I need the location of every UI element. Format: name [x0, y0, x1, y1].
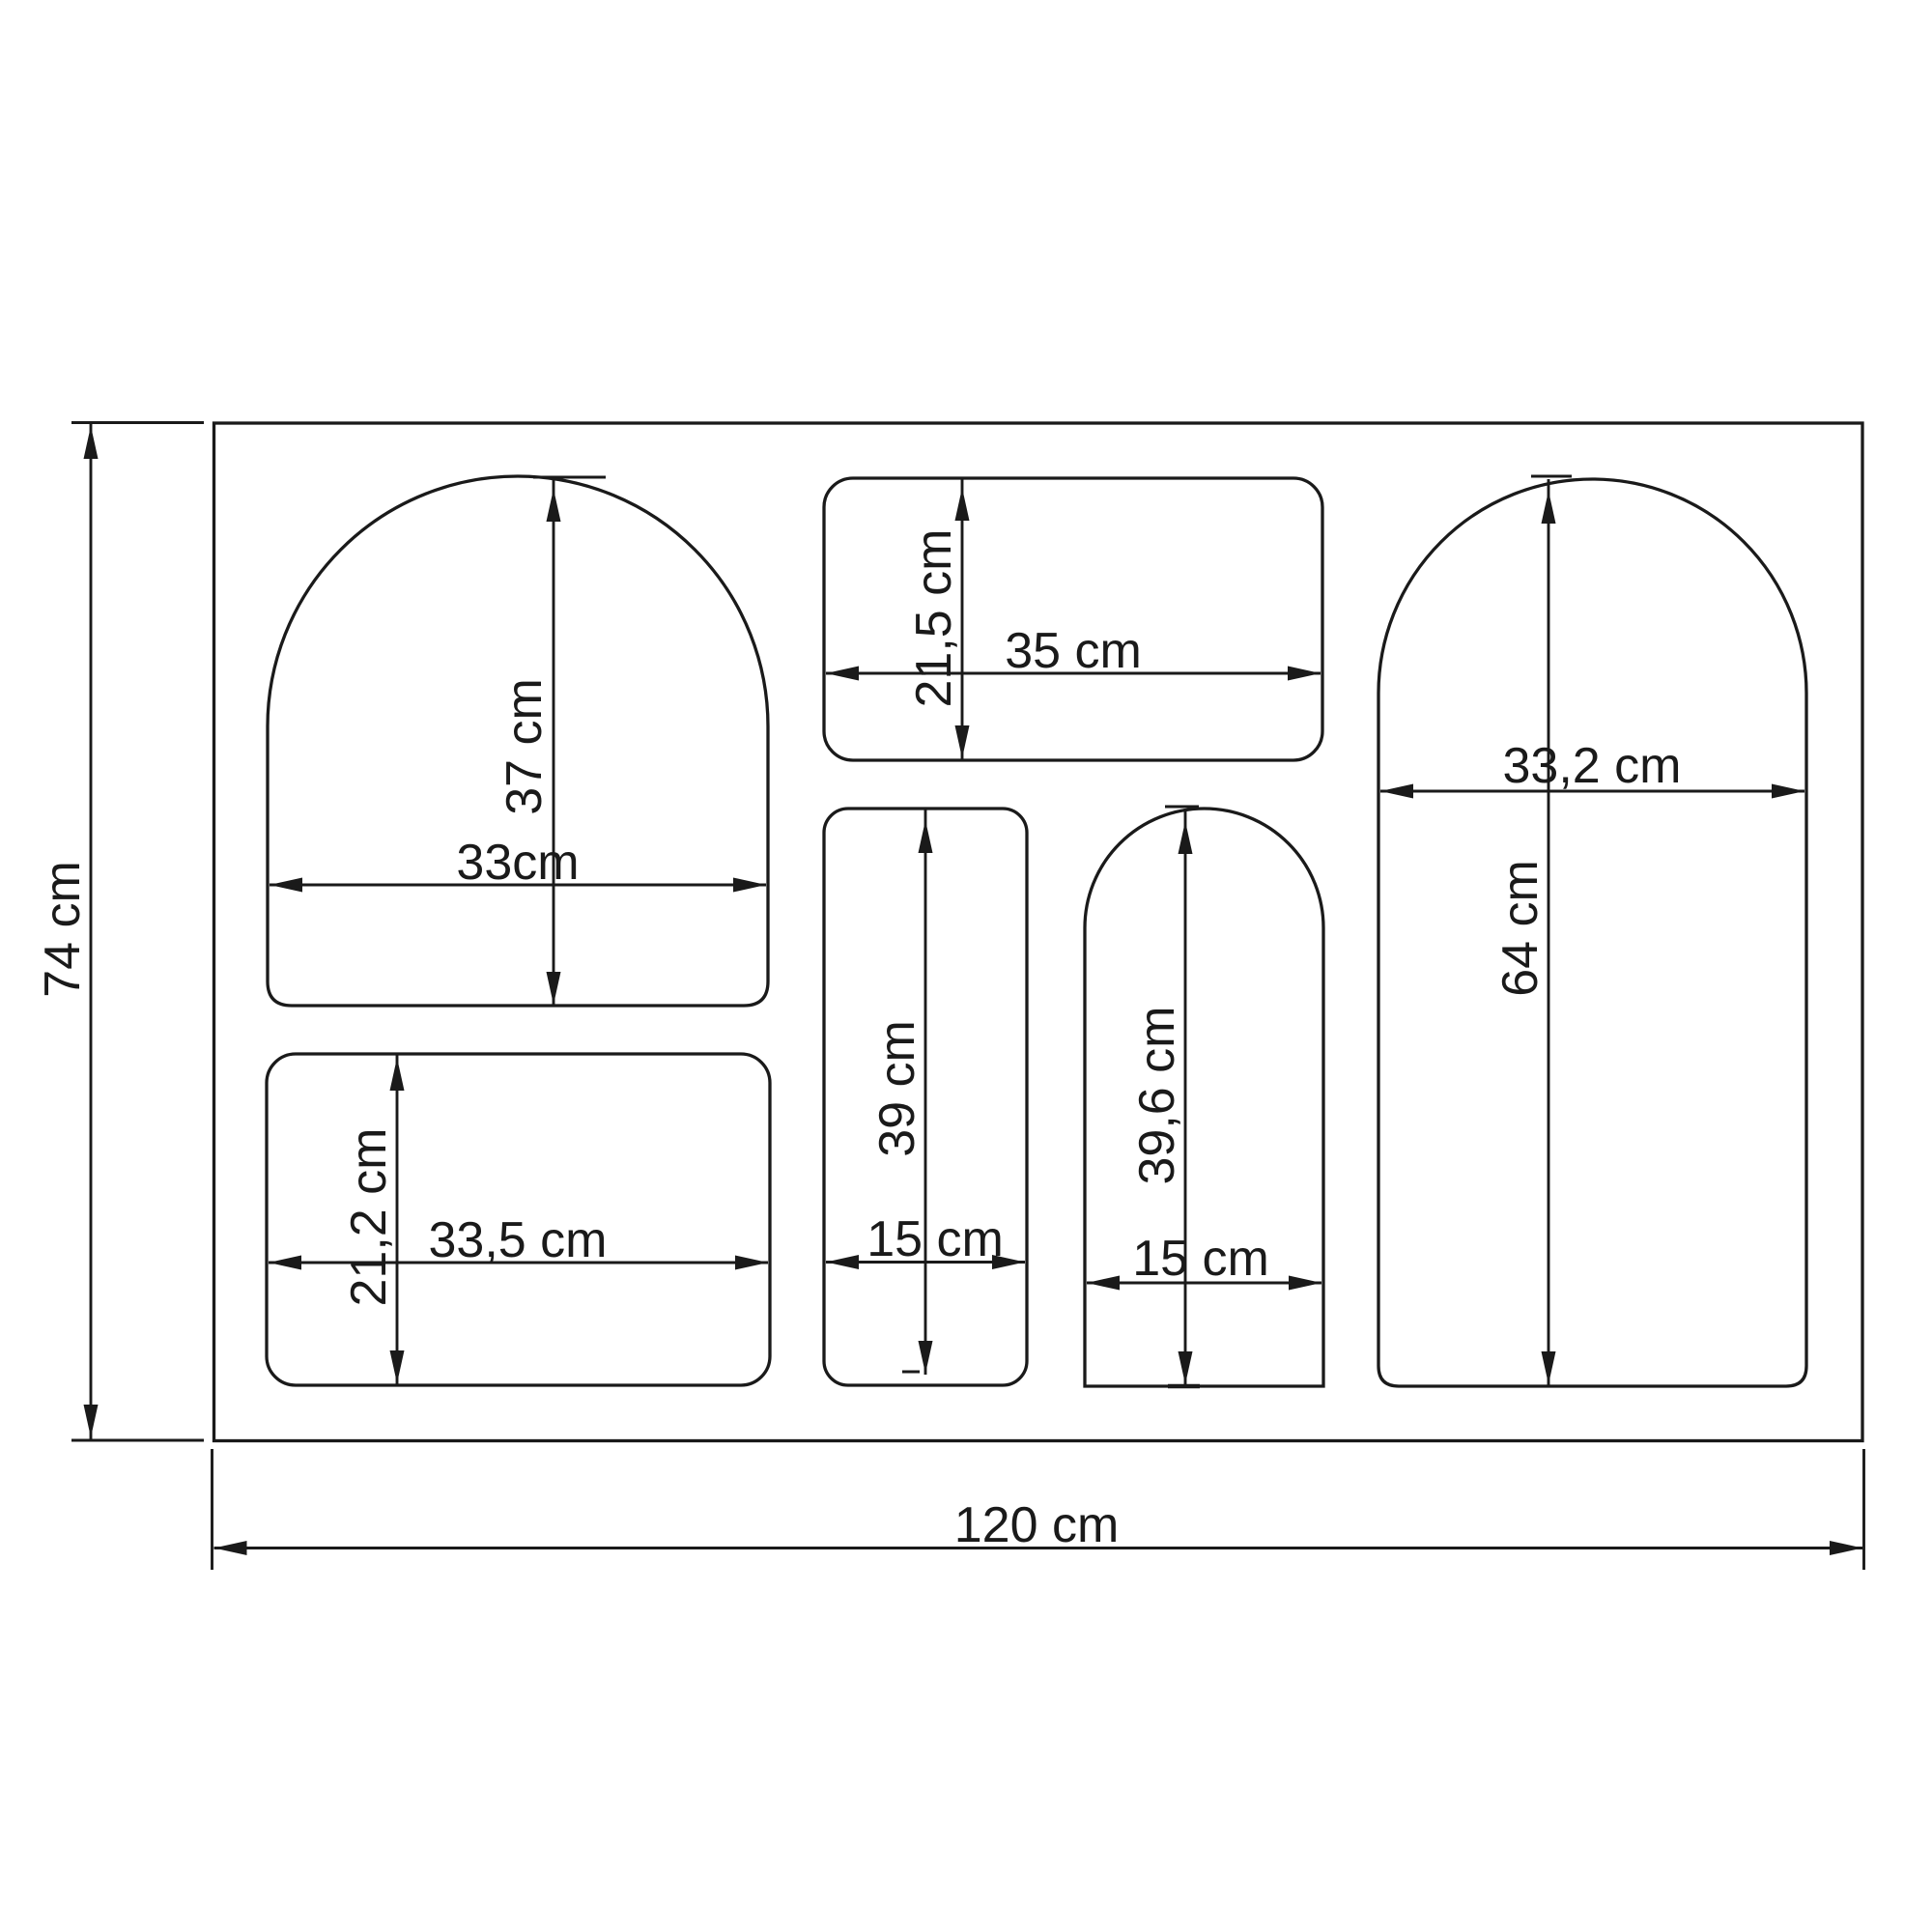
svg-text:37 cm: 37 cm — [497, 678, 553, 815]
svg-text:33,2 cm: 33,2 cm — [1503, 738, 1682, 794]
svg-text:21,5 cm: 21,5 cm — [906, 529, 962, 708]
svg-text:35 cm: 35 cm — [1005, 623, 1142, 679]
svg-text:39 cm: 39 cm — [869, 1020, 925, 1157]
svg-text:21,2 cm: 21,2 cm — [341, 1128, 397, 1307]
svg-text:33,5 cm: 33,5 cm — [429, 1212, 608, 1268]
svg-text:74 cm: 74 cm — [35, 861, 91, 998]
svg-text:15 cm: 15 cm — [1132, 1231, 1269, 1287]
svg-text:39,6 cm: 39,6 cm — [1129, 1007, 1185, 1185]
svg-text:15 cm: 15 cm — [867, 1211, 1004, 1267]
svg-text:120 cm: 120 cm — [954, 1497, 1120, 1553]
svg-text:64 cm: 64 cm — [1492, 860, 1548, 997]
svg-text:33cm: 33cm — [456, 835, 579, 891]
